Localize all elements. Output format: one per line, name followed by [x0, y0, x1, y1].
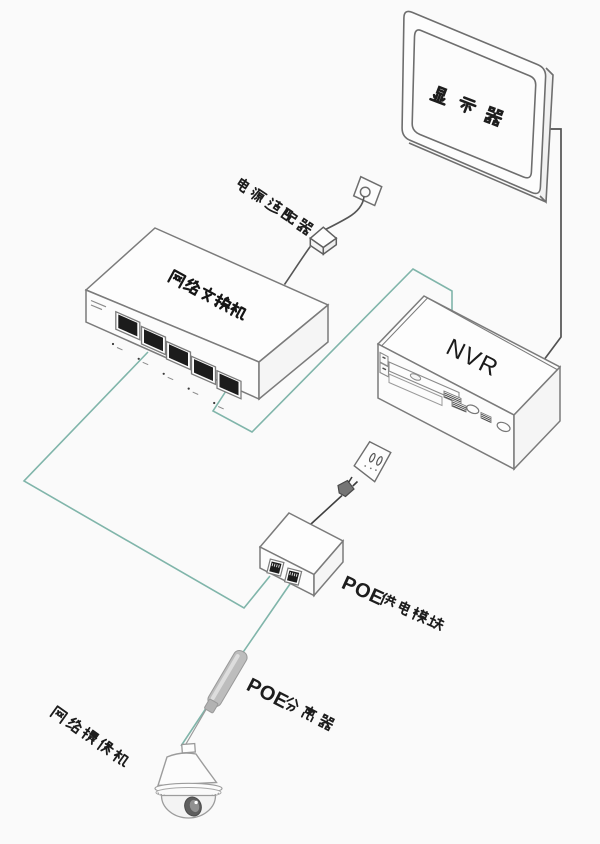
svg-text:POE: POE — [243, 674, 292, 713]
svg-text:POE: POE — [338, 572, 387, 610]
